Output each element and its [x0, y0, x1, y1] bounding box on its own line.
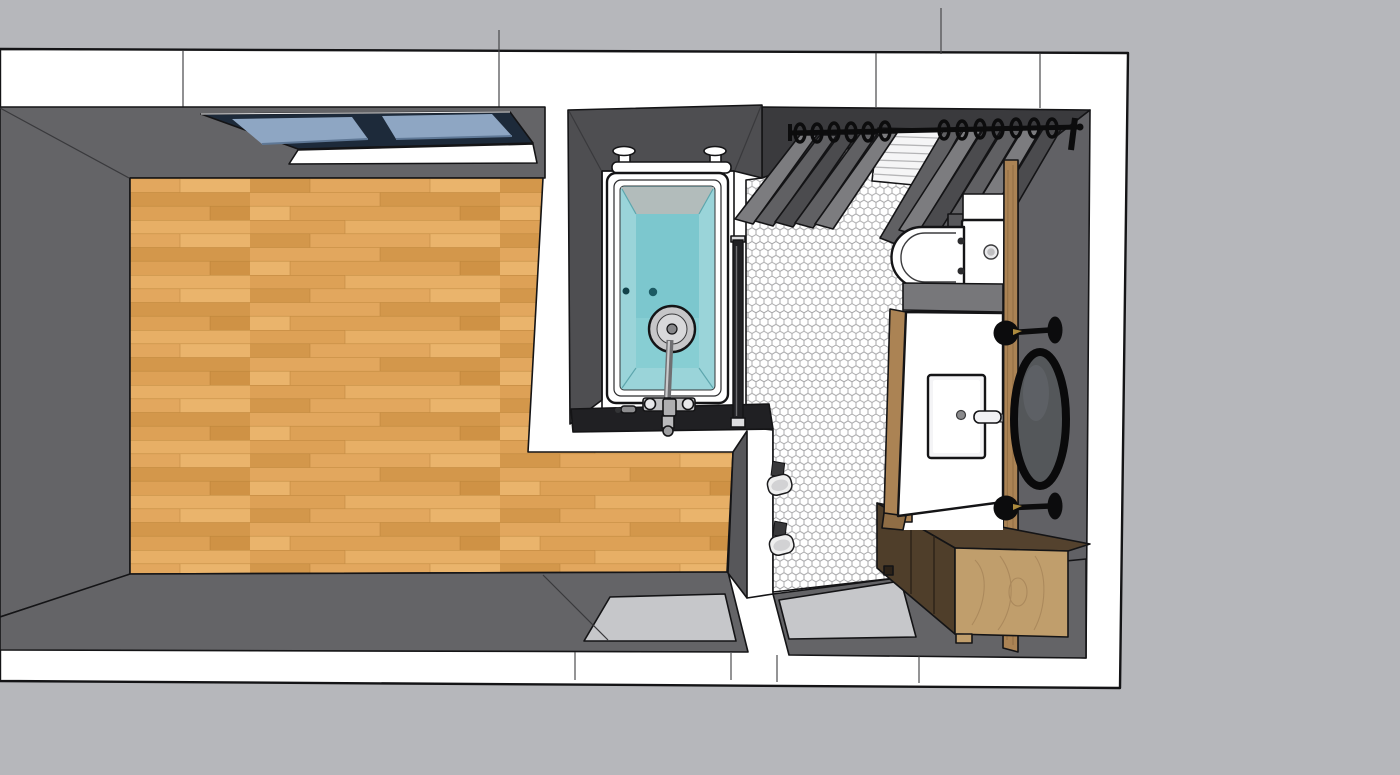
- bathtub-nook[interactable]: [568, 105, 773, 436]
- seat-hinge: [958, 268, 965, 275]
- tub-jet: [649, 288, 657, 296]
- toilet-ledge: [963, 194, 1005, 222]
- skylight-pane-right: [382, 114, 512, 139]
- water-reflection: [621, 187, 714, 214]
- toilet-lid: [892, 227, 965, 288]
- model-viewport[interactable]: [0, 0, 1400, 775]
- bathtub[interactable]: [607, 173, 728, 436]
- door-threshold-left[interactable]: [584, 594, 736, 641]
- round-mirror[interactable]: [1014, 352, 1066, 486]
- seat-hinge: [958, 238, 965, 245]
- cabinet-foot: [884, 566, 893, 575]
- tub-jet: [623, 288, 630, 295]
- vanity[interactable]: [882, 283, 1003, 530]
- vanity-back-shadow: [903, 283, 1003, 312]
- rod-finial-right: [1071, 118, 1075, 150]
- cabinet-foot: [956, 634, 972, 643]
- glass-screen[interactable]: [731, 236, 745, 427]
- sink-faucet[interactable]: [974, 411, 1003, 423]
- sink-drain: [957, 411, 966, 420]
